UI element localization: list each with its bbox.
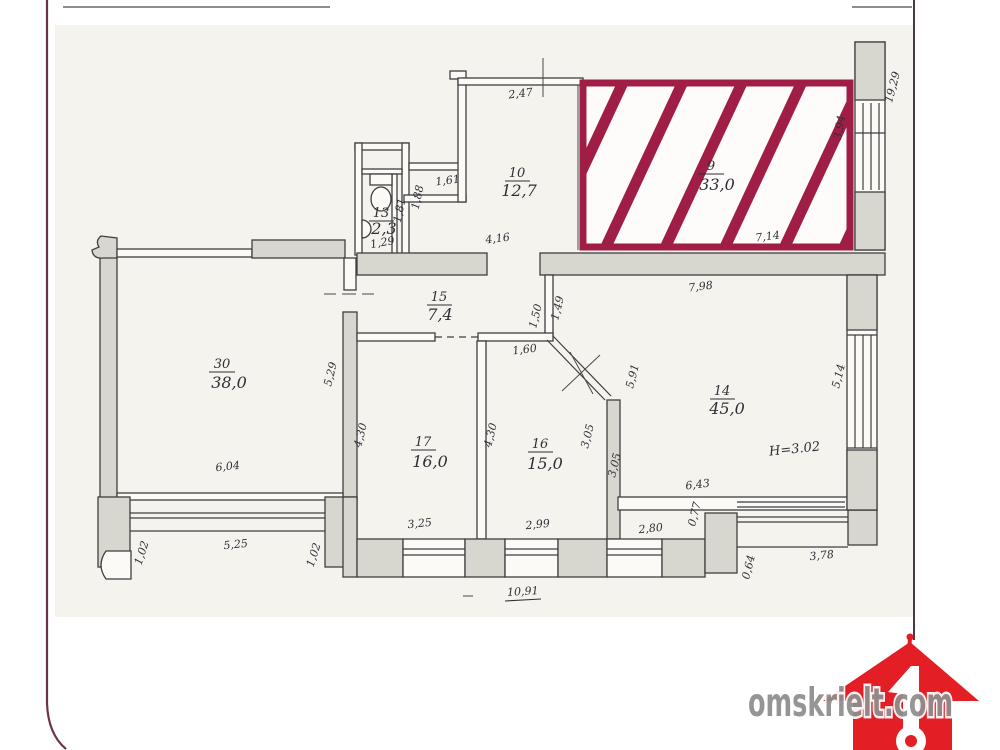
watermark-text: omskrielt.com <box>748 681 953 726</box>
floorplan-scan-page: 9 33,0 10 12,7 13 2,3 1,29 15 7,4 30 38,… <box>0 0 1000 750</box>
svg-text:15: 15 <box>431 290 448 305</box>
room-9-highlight <box>583 83 850 247</box>
svg-text:45,0: 45,0 <box>708 399 745 418</box>
svg-text:6,04: 6,04 <box>215 459 241 474</box>
svg-text:38,0: 38,0 <box>211 373 247 392</box>
svg-text:30: 30 <box>214 357 231 372</box>
svg-text:9: 9 <box>707 159 715 174</box>
wall-break-bottom-left <box>101 551 131 579</box>
svg-text:10: 10 <box>509 166 526 181</box>
svg-text:2,99: 2,99 <box>524 517 551 533</box>
svg-text:14: 14 <box>714 384 731 399</box>
svg-text:17: 17 <box>415 435 432 450</box>
svg-text:16: 16 <box>532 437 549 452</box>
svg-text:5,25: 5,25 <box>223 537 249 552</box>
svg-text:16,0: 16,0 <box>412 452 448 471</box>
svg-text:15,0: 15,0 <box>527 454 563 473</box>
svg-text:10,91: 10,91 <box>507 584 539 599</box>
svg-text:33,0: 33,0 <box>699 175 735 194</box>
floor-plan-canvas: 9 33,0 10 12,7 13 2,3 1,29 15 7,4 30 38,… <box>0 0 1000 750</box>
svg-text:12,7: 12,7 <box>501 181 537 200</box>
svg-text:3,78: 3,78 <box>809 548 835 563</box>
svg-text:3,25: 3,25 <box>407 516 433 531</box>
svg-text:2,80: 2,80 <box>637 521 664 537</box>
svg-text:7,4: 7,4 <box>427 305 452 324</box>
